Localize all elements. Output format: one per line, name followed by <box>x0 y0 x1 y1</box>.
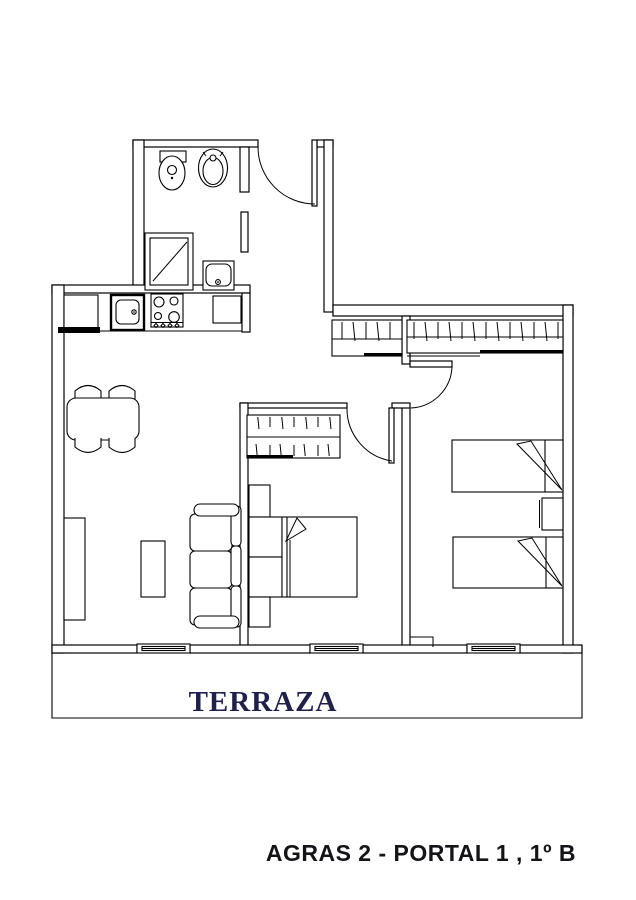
living-room <box>64 504 241 628</box>
shower-tray <box>145 233 193 290</box>
bathroom-door <box>241 212 248 252</box>
bedroom-wardrobe <box>247 415 340 459</box>
right-bedroom-door-leaf <box>410 361 452 367</box>
sofa-back <box>231 546 241 586</box>
sofa-armrest <box>194 504 239 516</box>
wall-bottom-2 <box>190 645 310 653</box>
bathroom-door-leaf <box>241 212 248 252</box>
floor-plan-drawing: TERRAZA AGRAS 2 - PORTAL 1 , 1º B <box>0 0 636 900</box>
wall-rbed-left-lower <box>402 407 410 647</box>
middle-bedroom-door <box>347 408 394 463</box>
wall-hall-right <box>324 140 333 312</box>
wall-right-outer <box>563 305 573 653</box>
toilet <box>199 149 228 187</box>
bedroom-wardrobe <box>407 320 563 356</box>
corridor-wardrobe <box>332 320 402 357</box>
terrace-window <box>467 644 520 653</box>
wall-bath-right-upper <box>240 147 249 192</box>
terrace-label: TERRAZA <box>189 686 338 718</box>
double-bed <box>282 517 357 597</box>
single-bed <box>452 440 563 492</box>
coffee-table <box>141 541 165 597</box>
dining-table <box>67 398 139 440</box>
stove-4-burners <box>151 294 183 328</box>
wall-bottom-1 <box>52 645 137 653</box>
middle-bedroom <box>247 415 357 627</box>
wall-bath-top <box>133 140 258 147</box>
dining-area <box>67 386 139 453</box>
wall-mbed-top <box>240 403 347 408</box>
kitchen <box>58 294 242 333</box>
nightstand <box>540 498 564 530</box>
chair <box>109 438 135 453</box>
bathroom-washbasin <box>203 261 234 290</box>
right-bedroom-door-swing-arc <box>411 367 452 408</box>
chair <box>75 438 101 453</box>
floor-plan-page: TERRAZA AGRAS 2 - PORTAL 1 , 1º B <box>0 0 636 900</box>
sofa-cushion <box>190 514 232 551</box>
kitchen-sink <box>111 295 144 330</box>
bidet <box>159 151 186 190</box>
right-bedroom <box>407 320 563 647</box>
terrace: TERRAZA <box>52 645 582 718</box>
single-bed <box>453 537 563 588</box>
sofa-3-seats <box>190 504 241 628</box>
middle-bedroom-door-swing-arc <box>347 408 392 461</box>
wall-counter-right <box>242 293 250 332</box>
wall-bottom-4 <box>520 645 582 653</box>
nightstand <box>249 485 270 517</box>
entry-door-swing-arc <box>258 147 315 204</box>
sofa-armrest <box>194 616 239 628</box>
wall-bedrooms-top <box>333 305 573 316</box>
wall-bottom-3 <box>363 645 467 653</box>
headboard-unit <box>249 557 282 597</box>
entry-door <box>258 140 317 206</box>
nightstand <box>249 597 270 627</box>
plan-title: AGRAS 2 - PORTAL 1 , 1º B <box>266 840 576 866</box>
entry-door-leaf <box>312 140 317 206</box>
middle-bedroom-door-leaf <box>389 408 394 463</box>
headboard-unit <box>249 517 282 557</box>
oven <box>213 296 241 323</box>
fridge-cabinet <box>58 295 100 333</box>
bathroom <box>145 149 234 290</box>
wall-bath-left <box>133 140 144 293</box>
terrace-window <box>310 644 363 653</box>
sofa-cushion <box>190 551 232 588</box>
terrace-window <box>137 644 190 653</box>
sideboard <box>64 518 85 620</box>
wall-left-outer <box>52 285 64 653</box>
right-bedroom-door <box>410 361 452 408</box>
wall-mbed-top-jamb <box>392 403 410 408</box>
